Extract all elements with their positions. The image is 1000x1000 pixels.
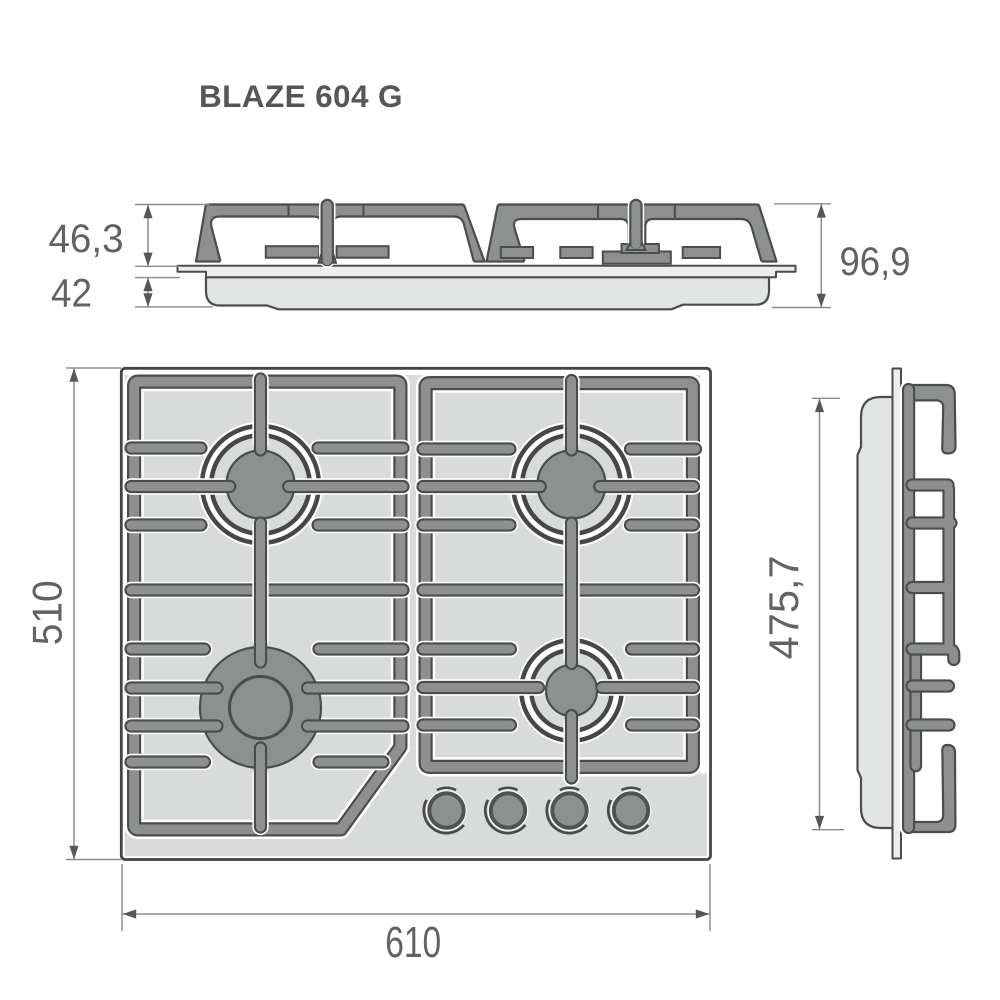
svg-text:610: 610 [385, 919, 441, 967]
svg-text:BLAZE 604 G: BLAZE 604 G [199, 78, 403, 114]
svg-text:510: 510 [24, 580, 71, 645]
svg-text:46,3: 46,3 [49, 217, 124, 261]
svg-text:96,9: 96,9 [840, 240, 911, 284]
svg-text:475,7: 475,7 [760, 555, 807, 659]
svg-text:42: 42 [51, 271, 92, 315]
